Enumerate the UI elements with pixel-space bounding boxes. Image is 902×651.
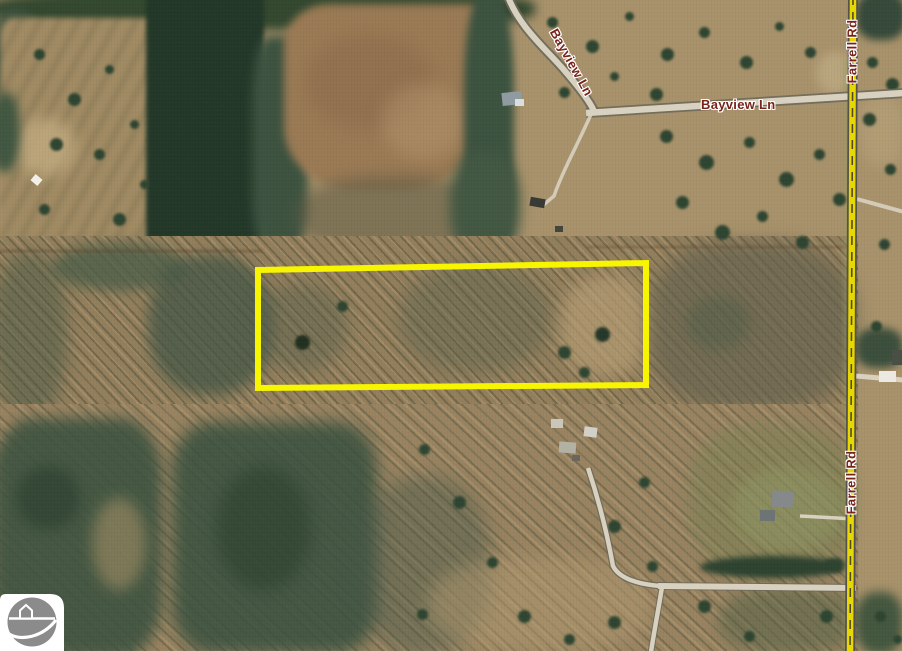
parcel-boundary-outline [258, 263, 646, 388]
terrain-center-dark [216, 466, 311, 591]
terrain-mixed-forest [252, 36, 308, 258]
road-verge [843, 60, 851, 650]
aerial-map-viewport[interactable]: Bayview Ln Bayview Ln Farrell Rd Farrell… [0, 0, 902, 651]
farrell-rd-road [850, 0, 853, 651]
terrain-parcel-clearing [560, 276, 652, 376]
terrain-pasture [688, 424, 856, 576]
terrain-field-mottle [306, 36, 432, 128]
terrain-green-mass [148, 255, 273, 395]
driveway-north [541, 112, 592, 207]
terrain-parcel-scrub [253, 282, 348, 372]
building [551, 419, 563, 428]
driveway-casing [588, 468, 660, 586]
terrain-bottom-light [428, 556, 653, 651]
terrain-east-scrub [648, 242, 856, 410]
building [559, 441, 577, 453]
terrain-parcel-scrub [398, 262, 553, 374]
terrain-bottom-band [0, 404, 858, 651]
driveway-farm [588, 468, 660, 586]
scattered-trees [0, 0, 9, 9]
bottom-road-casing [658, 586, 856, 588]
terrain-field-edge [296, 176, 492, 254]
driveway-east-mid [856, 376, 902, 380]
road-label-farrell-rd-north: Farrell Rd [844, 20, 859, 84]
farrell-rd-casing [850, 0, 853, 651]
building [501, 91, 522, 106]
terrain-r-trees [856, 328, 902, 368]
building [879, 371, 896, 382]
road-label-bayview-ln-east: Bayview Ln [701, 97, 776, 112]
terrain-forest-strip-widen [450, 150, 520, 262]
brokerage-logo [0, 594, 64, 651]
terrain-bl-gap [92, 498, 146, 590]
terrain-top-forest-strip [0, 0, 535, 30]
building [760, 510, 775, 521]
building [772, 490, 794, 507]
building [572, 455, 580, 461]
terrain-scrub-band [0, 236, 858, 418]
terrain-light-patch [14, 118, 76, 176]
building [555, 226, 563, 232]
terrain-topleft-field [0, 18, 165, 256]
road-label-farrell-rd-south: Farrell Rd [843, 451, 858, 515]
terrain-center-transition [356, 476, 491, 651]
south-branch-casing [651, 587, 662, 651]
terrain-bl-dark [16, 466, 80, 530]
terrain-left-green [0, 92, 20, 172]
driveway-northeast [857, 199, 902, 212]
logo-circle [8, 598, 57, 647]
terrain-scrub-green [0, 252, 67, 417]
terrain-r-green-bottom [856, 592, 902, 651]
farrell-rd-centerline [850, 0, 853, 651]
tree-row [700, 556, 846, 578]
field-boundary-line [0, 250, 262, 252]
field-boundary-line [588, 246, 853, 248]
terrain-right-field-light [860, 96, 902, 166]
terrain-lawn [732, 468, 844, 550]
bottom-road [658, 586, 856, 588]
road-label-bayview-ln-curve: Bayview Ln [547, 26, 596, 98]
tree-row [824, 558, 846, 572]
terrain-pine-plantation [146, 0, 264, 260]
building [583, 426, 597, 438]
building [529, 197, 545, 208]
terrain-brown-field [284, 4, 492, 190]
terrain-topleft-green [0, 8, 38, 103]
white-marker [30, 174, 42, 186]
driveway-southeast [800, 516, 855, 519]
terrain-field-mottle [382, 84, 466, 160]
terrain-br-green [718, 588, 860, 651]
terrain-ne-green [856, 0, 902, 40]
building [892, 350, 902, 365]
terrain-forest-strip-vertical [464, 0, 514, 266]
terrain-east-scrub-green [686, 296, 750, 350]
terrain-center-green-strip [172, 422, 377, 651]
building [515, 99, 524, 106]
south-branch-road [651, 587, 662, 651]
terrain-scrub-green [52, 243, 187, 291]
